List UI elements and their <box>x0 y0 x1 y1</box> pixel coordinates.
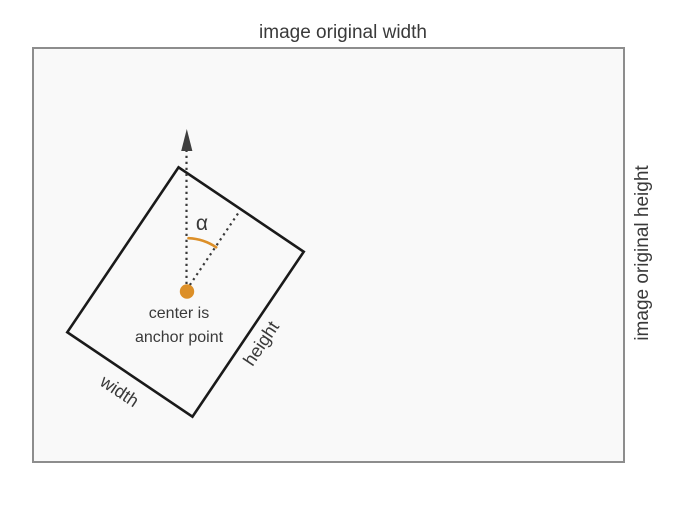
angle-arc <box>189 238 217 247</box>
center-caption-line1: center is <box>149 305 209 322</box>
angle-alpha-label: α <box>196 212 208 235</box>
up-arrow-icon <box>181 129 192 151</box>
rotation-diagram: α center is anchor point width height <box>0 0 674 521</box>
rotation-explainer-figure: image original width image original heig… <box>0 0 674 521</box>
center-caption-line2: anchor point <box>135 329 224 346</box>
box-width-label: width <box>96 371 143 412</box>
rotated-axis-dotted-line <box>187 211 241 291</box>
box-height-label: height <box>239 317 283 369</box>
anchor-point-dot <box>180 284 194 298</box>
